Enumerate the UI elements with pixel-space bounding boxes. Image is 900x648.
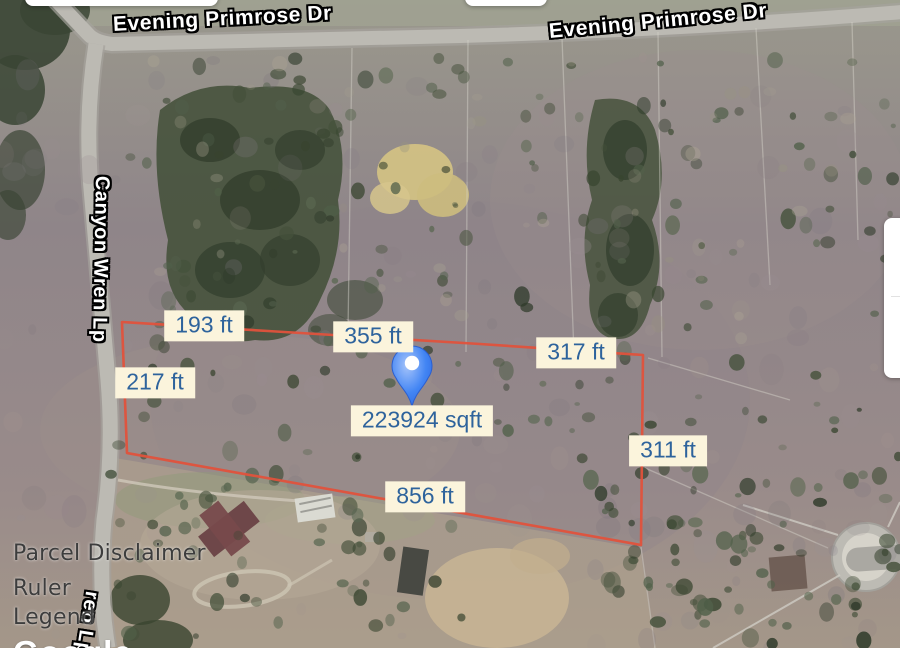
menu-item-ruler[interactable]: Ruler <box>13 576 71 601</box>
zoom-control-divider <box>891 296 900 297</box>
measurement-left: 217 ft <box>115 367 195 398</box>
menu-item-parcel-disclaimer[interactable]: Parcel Disclaimer <box>13 541 206 566</box>
clipped-toolbar-fragment-left[interactable] <box>25 0 218 6</box>
measurement-right: 311 ft <box>629 435 707 466</box>
measurement-top-left: 193 ft <box>164 310 244 341</box>
measurement-top-right: 317 ft <box>536 337 616 368</box>
menu-item-legend[interactable]: Legend <box>13 605 95 630</box>
measurement-bottom: 856 ft <box>385 481 465 512</box>
parcel-area-label: 223924 sqft <box>351 405 493 436</box>
street-label-canyon-wren: Canyon Wren Lp <box>87 176 113 343</box>
measurement-top-middle: 355 ft <box>333 321 413 352</box>
google-logo: Google <box>13 634 133 648</box>
map-zoom-control-fragment[interactable] <box>884 218 900 378</box>
map-canvas[interactable]: Evening Primrose Dr Evening Primrose Dr … <box>0 0 900 648</box>
clipped-toolbar-fragment-middle[interactable] <box>465 0 547 6</box>
